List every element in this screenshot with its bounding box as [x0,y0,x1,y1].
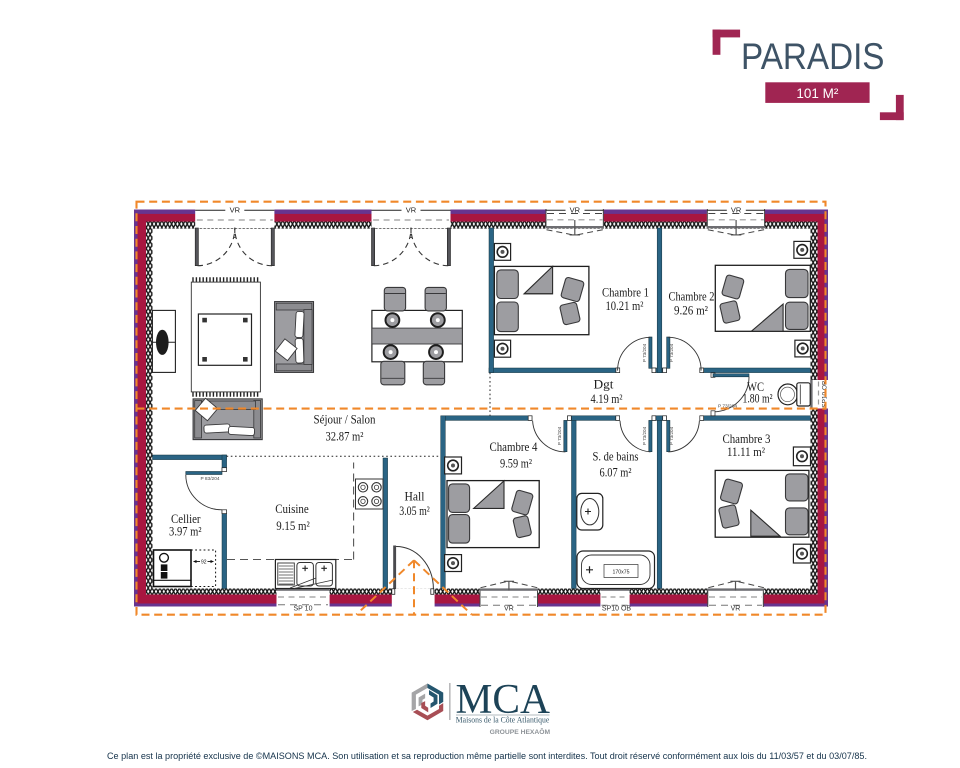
svg-text:101 M²: 101 M² [796,86,839,101]
svg-text:11.11 m²: 11.11 m² [727,445,765,459]
svg-text:10.21 m²: 10.21 m² [606,299,644,313]
svg-text:PARADIS: PARADIS [741,36,885,77]
svg-text:VR: VR [230,206,241,215]
svg-text:9.59 m²: 9.59 m² [500,457,532,471]
svg-text:Chambre 3: Chambre 3 [723,432,771,446]
svg-text:3.05 m²: 3.05 m² [399,504,430,518]
svg-text:P 73/204: P 73/204 [642,426,647,445]
svg-text:S. de bains: S. de bains [593,450,639,464]
svg-text:VR: VR [731,605,741,612]
svg-text:32.87 m²: 32.87 m² [326,430,364,444]
svg-text:1.80 m²: 1.80 m² [743,392,773,406]
svg-text:9.26 m²: 9.26 m² [674,304,708,318]
svg-text:170x75: 170x75 [612,570,629,576]
svg-text:Chambre 2: Chambre 2 [669,290,715,304]
svg-text:6.07 m²: 6.07 m² [600,466,632,480]
svg-text:P 73/204: P 73/204 [642,343,647,362]
svg-text:Chambre 4: Chambre 4 [490,440,539,454]
svg-text:Hall: Hall [405,490,425,504]
svg-text:Cuisine: Cuisine [275,502,309,516]
svg-text:GROUPE HEXAÔM: GROUPE HEXAÔM [490,727,551,736]
svg-text:VR: VR [504,605,514,612]
svg-text:SP 10: SP 10 [294,606,313,613]
svg-text:4.19 m²: 4.19 m² [591,392,623,406]
svg-text:P 73/204: P 73/204 [557,426,562,445]
svg-text:Dgt: Dgt [594,378,615,392]
svg-text:P 73/204: P 73/204 [669,426,674,445]
svg-text:Chambre 1: Chambre 1 [602,286,649,300]
svg-text:Ce plan est la propriété exclu: Ce plan est la propriété exclusive de ©M… [107,751,867,761]
svg-text:SP10 OB: SP10 OB [602,605,632,612]
svg-text:P 73/204: P 73/204 [669,343,674,362]
svg-text:3.97 m²: 3.97 m² [169,525,202,539]
svg-text:92: 92 [201,560,207,566]
svg-text:Séjour / Salon: Séjour / Salon [314,413,377,427]
svg-text:Maisons de la Côte Atlantique: Maisons de la Côte Atlantique [456,715,550,725]
svg-text:9.15 m²: 9.15 m² [276,519,310,533]
svg-text:P 83/204: P 83/204 [200,476,219,482]
svg-text:VR: VR [406,206,417,215]
